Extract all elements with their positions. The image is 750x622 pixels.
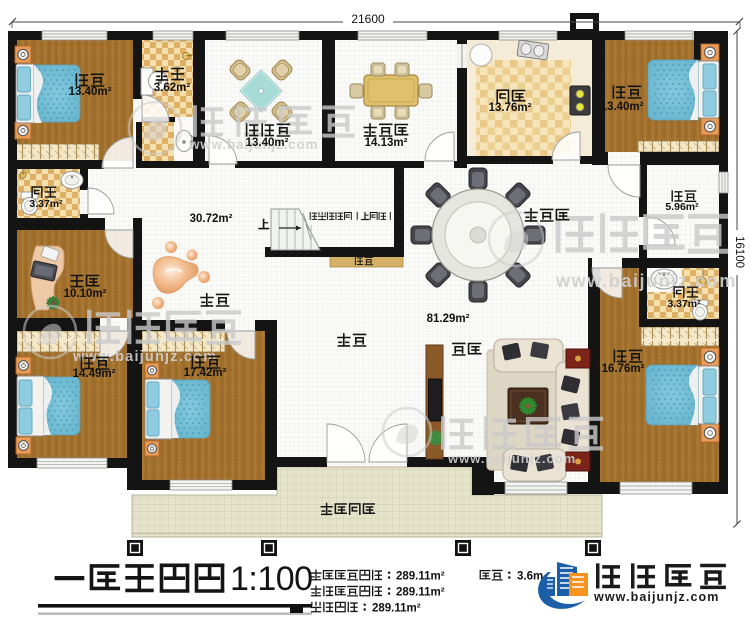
svg-text:13.40m²: 13.40m² <box>246 137 289 149</box>
svg-text:289.11m²: 289.11m² <box>372 603 421 615</box>
svg-text:289.11m²: 289.11m² <box>396 571 445 583</box>
svg-text:13.40m²: 13.40m² <box>601 101 644 113</box>
svg-text:16.76m²: 16.76m² <box>602 363 645 375</box>
svg-text:5.96m²: 5.96m² <box>665 201 699 213</box>
svg-text:17.42m²: 17.42m² <box>184 367 227 379</box>
svg-text:www.baijunjz.com: www.baijunjz.com <box>555 271 737 291</box>
svg-text:21600: 21600 <box>351 12 385 26</box>
svg-text:3.37m²: 3.37m² <box>667 298 701 310</box>
svg-text:1:100: 1:100 <box>230 560 313 598</box>
svg-text:10.10m²: 10.10m² <box>64 288 107 300</box>
svg-text:3.37m²: 3.37m² <box>29 198 63 210</box>
svg-text:81.29m²: 81.29m² <box>427 313 470 325</box>
svg-text:3.6m: 3.6m <box>517 571 543 583</box>
svg-text:13.76m²: 13.76m² <box>489 102 532 114</box>
svg-text:16100: 16100 <box>733 236 745 268</box>
svg-text:www.baijunjz.com: www.baijunjz.com <box>447 451 576 466</box>
svg-text:30.72m²: 30.72m² <box>190 213 233 225</box>
svg-text:www.baijunjz.com: www.baijunjz.com <box>593 590 719 604</box>
svg-text:3.62m²: 3.62m² <box>154 82 191 94</box>
svg-text:14.13m²: 14.13m² <box>365 137 408 149</box>
svg-text:14.49m²: 14.49m² <box>73 368 116 380</box>
svg-text:13.40m²: 13.40m² <box>69 86 112 98</box>
svg-text:289.11m²: 289.11m² <box>396 587 445 599</box>
